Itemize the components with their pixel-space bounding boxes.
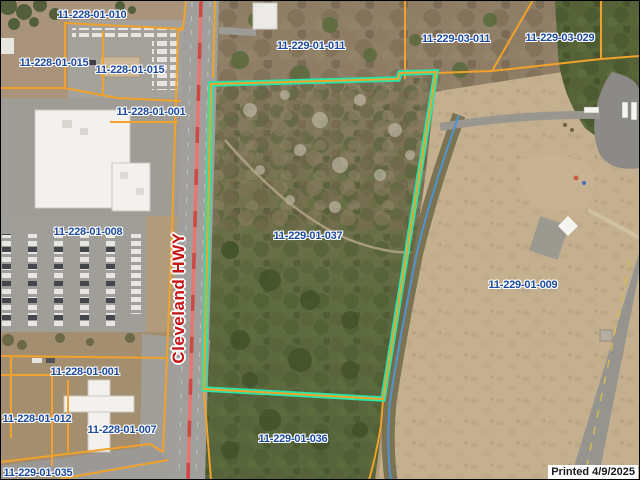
aerial-map-image [0,0,640,480]
map-canvas[interactable]: 11-228-01-010 11-228-01-015 11-228-01-01… [0,0,640,480]
parking-lot [0,216,146,332]
small-building-nw [100,57,140,77]
print-date-stamp: Printed 4/9/2025 [548,465,638,479]
small-building-n [253,3,277,29]
small-structure-e [600,330,612,341]
